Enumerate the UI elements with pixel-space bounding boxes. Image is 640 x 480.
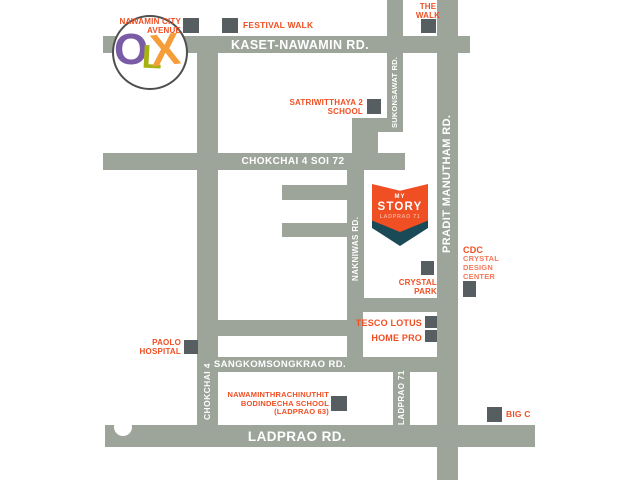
olx-letter-x: X [148,26,183,74]
label-home-pro: HOME PRO [352,333,422,343]
project-logo-ladprao: LADPRAO 71 [372,214,428,220]
road-label-chokchai4: CHOKCHAI 4 [197,360,218,424]
label-bodindecha-school: NAWAMINTHRACHINUTHIT BODINDECHA SCHOOL (… [225,391,329,417]
label-big-c: BIG C [506,410,531,420]
marker-the-walk [421,19,436,33]
road-label-chokchai4-soi72: CHOKCHAI 4 SOI 72 [203,154,383,170]
label-satriwitthaya2-school: SATRIWITTHAYA 2 SCHOOL [268,98,363,116]
marker-big-c [487,407,502,422]
marker-paolo-hospital [184,340,198,354]
road-label-ladprao71: LADPRAO 71 [393,370,410,425]
marker-satriwitthaya2-school [367,99,381,114]
label-festival-walk: FESTIVAL WALK [243,21,313,31]
marker-cdc [463,281,476,297]
label-tesco-lotus: TESCO LOTUS [352,318,422,328]
label-cdc: CDC CRYSTAL DESIGN CENTER [463,245,499,281]
marker-festival-walk [222,18,238,33]
label-paolo-hospital: PAOLO HOSPITAL [135,338,181,356]
marker-nawamin-city-avenue [183,18,199,33]
ladprao-road-junction-dot [114,418,132,436]
project-logo-my: MY [372,194,428,200]
road-chokchai4-nakniwas-link [218,320,348,336]
project-logo-text: MY STORY LADPRAO 71 [372,184,428,220]
road-label-ladprao: LADPRAO RD. [217,427,377,446]
location-map: KASET-NAWAMIN RD. CHOKCHAI 4 SOI 72 SANG… [0,0,640,480]
label-crystal-park: CRYSTAL PARK [382,278,437,296]
road-label-kaset-nawamin: KASET-NAWAMIN RD. [180,37,420,53]
marker-crystal-park [421,261,434,275]
road-soi-stub-south [282,223,347,237]
road-label-nakniwas: NAKNIWAS RD. [347,210,364,288]
marker-bodindecha-school [331,396,347,411]
label-the-walk: THE WALK [408,2,448,20]
road-label-sangkomsongkrao: SANGKOMSONGKRAO RD. [210,358,350,372]
marker-home-pro [425,330,437,342]
project-logo-story: STORY [372,201,428,213]
road-soi-stub-north [282,185,347,200]
marker-tesco-lotus [425,316,437,328]
road-label-sukonsawat: SUKONSAWAT RD. [387,56,403,130]
road-label-pradit-manutham: PRADIT MANUTHAM RD. [437,108,458,260]
